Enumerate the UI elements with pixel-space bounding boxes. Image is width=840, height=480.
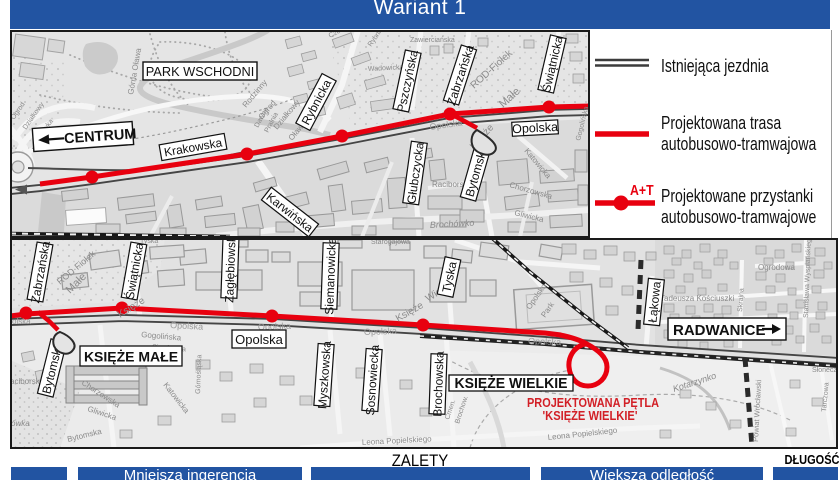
svg-text:Zagłębiowska: Zagłębiowska <box>222 238 239 303</box>
svg-text:KSIĘŻE MAŁE: KSIĘŻE MAŁE <box>84 349 178 365</box>
svg-text:Brochowska: Brochowska <box>430 351 446 417</box>
svg-text:olska: olska <box>12 317 31 326</box>
svg-text:ówka: ówka <box>11 419 30 428</box>
svg-text:PARK WSCHODNI: PARK WSCHODNI <box>146 64 255 79</box>
svg-text:Opolska: Opolska <box>528 336 561 347</box>
svg-text:'KSIĘŻE WIELKIE': 'KSIĘŻE WIELKIE' <box>543 408 638 423</box>
svg-text:Opolska: Opolska <box>235 332 283 347</box>
svg-text:Starogajowa: Starogajowa <box>371 239 410 246</box>
svg-text:Opolska: Opolska <box>170 320 204 332</box>
svg-text:Tadeusza Kościuszki: Tadeusza Kościuszki <box>660 294 734 303</box>
svg-text:Zawierciańska: Zawierciańska <box>410 37 455 44</box>
svg-text:Opolska: Opolska <box>364 326 397 337</box>
svg-text:Górnośląska: Górnośląska <box>195 354 203 394</box>
svg-text:Ogrodowa: Ogrodowa <box>758 263 795 272</box>
svg-text:Opolska: Opolska <box>512 120 559 136</box>
svg-text:KSIĘŻE WIELKIE: KSIĘŻE WIELKIE <box>455 375 568 392</box>
svg-text:Siemanowicka: Siemanowicka <box>322 238 339 315</box>
svg-text:RADWANICE: RADWANICE <box>673 322 766 339</box>
svg-text:Słoneczna: Słoneczna <box>812 367 838 374</box>
